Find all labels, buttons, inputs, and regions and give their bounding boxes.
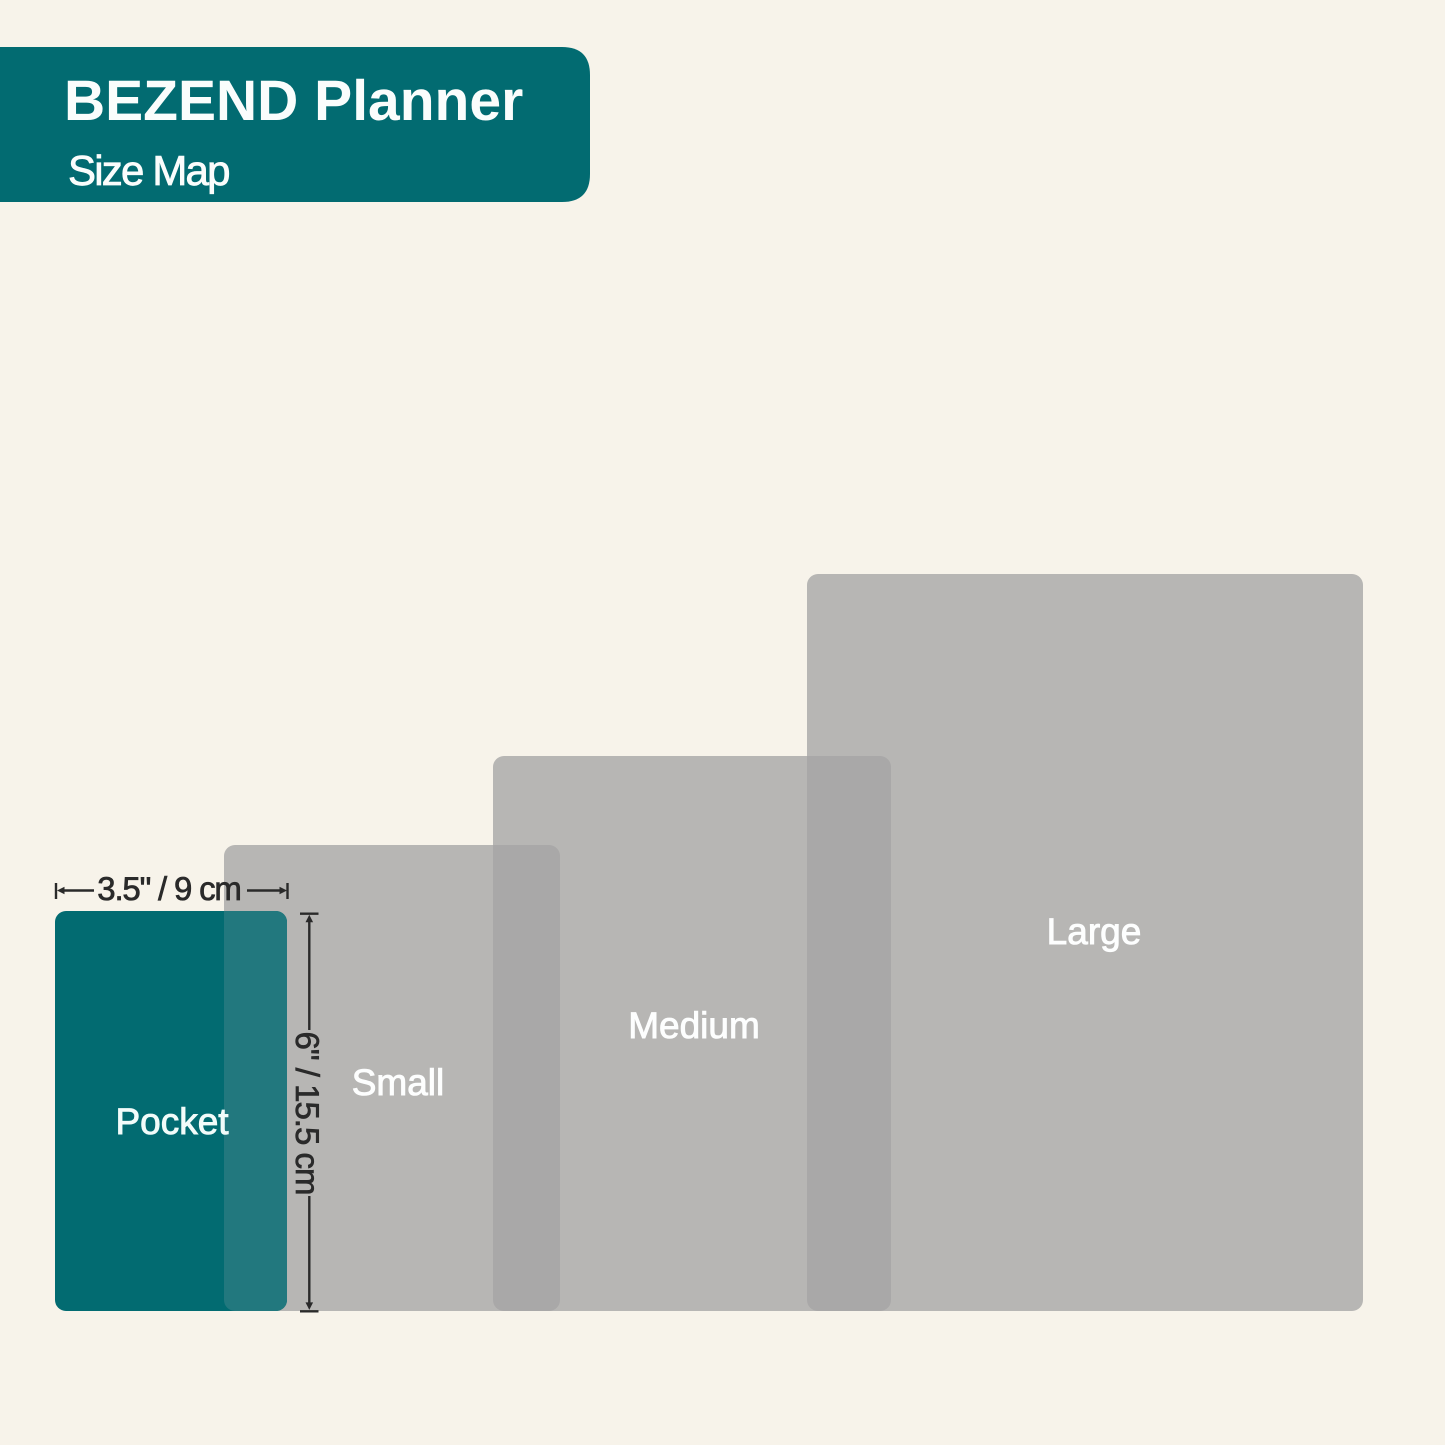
svg-text:Pocket: Pocket xyxy=(115,1101,229,1142)
svg-text:6" / 15.5 cm: 6" / 15.5 cm xyxy=(289,1032,326,1195)
svg-text:Large: Large xyxy=(1047,911,1142,952)
svg-text:3.5" / 9 cm: 3.5" / 9 cm xyxy=(97,870,240,907)
svg-text:Medium: Medium xyxy=(628,1005,760,1046)
svg-text:Size Map: Size Map xyxy=(68,147,229,194)
svg-text:BEZEND Planner: BEZEND Planner xyxy=(64,69,523,133)
svg-text:Small: Small xyxy=(352,1062,445,1103)
